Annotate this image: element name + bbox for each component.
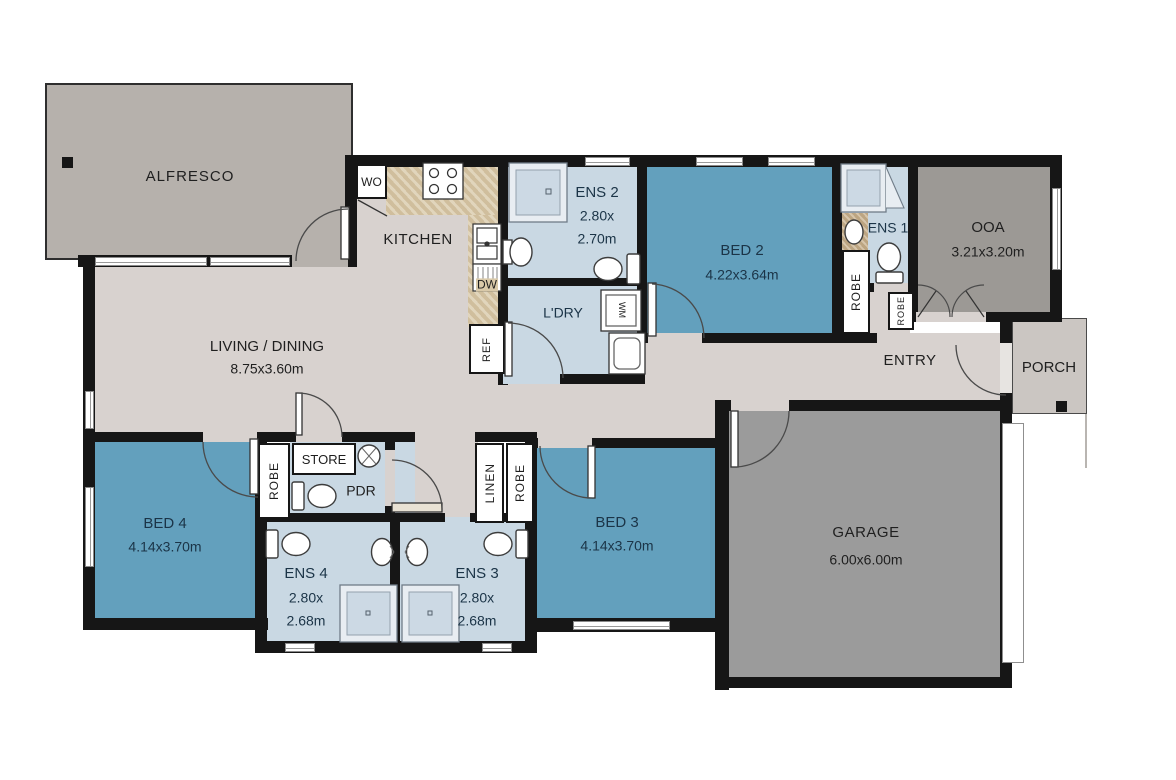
kitchen-label: KITCHEN (383, 232, 452, 249)
ooa-double-doors (918, 285, 984, 317)
bed2-door (648, 283, 704, 338)
pdr-toilet (292, 482, 336, 510)
ens3-basin (405, 539, 428, 566)
laundry-door (505, 322, 563, 378)
bed4-dims: 4.14x3.70m (128, 539, 201, 554)
bed2-label: BED 2 (720, 243, 763, 260)
cooktop (423, 163, 463, 199)
bed4-door (203, 439, 258, 497)
ens4-label: ENS 4 (284, 566, 327, 583)
living-label: LIVING / DINING (210, 339, 324, 356)
floor-plan: ROBE ROBE ROBE STORE LINEN ROBE WO REF (0, 0, 1176, 780)
garage-entry-door (731, 411, 789, 467)
washing-machine-label: WM (616, 302, 626, 318)
ens2-dims-a: 2.80x (580, 208, 614, 223)
ens1-label: ENS 1 (868, 220, 908, 235)
ens3-label: ENS 3 (455, 566, 498, 583)
bed2-dims: 4.22x3.64m (705, 267, 778, 282)
ens3-dims-a: 2.80x (460, 590, 494, 605)
pdr-door (392, 460, 442, 512)
ens3-toilet (484, 530, 528, 558)
bed3-door (540, 446, 595, 498)
ens2-shower (509, 163, 567, 222)
ens1-toilet (876, 243, 903, 283)
ens2-dims-b: 2.70m (578, 231, 617, 246)
store-door (296, 393, 342, 437)
ooa-label: OOA (971, 220, 1004, 237)
kitchen-corner-line (358, 200, 387, 216)
porch-label: PORCH (1022, 360, 1076, 377)
ens4-toilet (266, 530, 310, 558)
bed3-dims: 4.14x3.70m (580, 538, 653, 553)
laundry-tub (609, 333, 645, 374)
ens4-dims-a: 2.80x (289, 590, 323, 605)
garage-dims: 6.00x6.00m (829, 552, 902, 567)
dishwasher-label: DW (476, 278, 498, 291)
ens4-basin (372, 539, 395, 566)
ens1-shower (841, 164, 904, 212)
bed3-label: BED 3 (595, 515, 638, 532)
fixtures-layer (0, 0, 1176, 780)
alfresco-label: ALFRESCO (146, 169, 235, 186)
ens1-basin (845, 220, 863, 244)
pdr-label: PDR (346, 483, 376, 498)
ens3-dims-b: 2.68m (458, 613, 497, 628)
ens2-toilet (594, 254, 640, 284)
laundry-label: L'DRY (543, 305, 583, 320)
ooa-dims: 3.21x3.20m (951, 244, 1024, 259)
ens4-dims-b: 2.68m (287, 613, 326, 628)
garage-label: GARAGE (832, 525, 899, 542)
pdr-basin (358, 445, 380, 467)
ens4-shower (340, 585, 397, 642)
ens3-shower (402, 585, 459, 642)
alfresco-door (296, 207, 349, 261)
entry-label: ENTRY (883, 353, 936, 370)
bed4-label: BED 4 (143, 516, 186, 533)
living-dims: 8.75x3.60m (230, 361, 303, 376)
front-door (956, 345, 1006, 395)
kitchen-sink (473, 224, 501, 264)
ens2-label: ENS 2 (575, 185, 618, 202)
ens2-basin (503, 238, 532, 266)
